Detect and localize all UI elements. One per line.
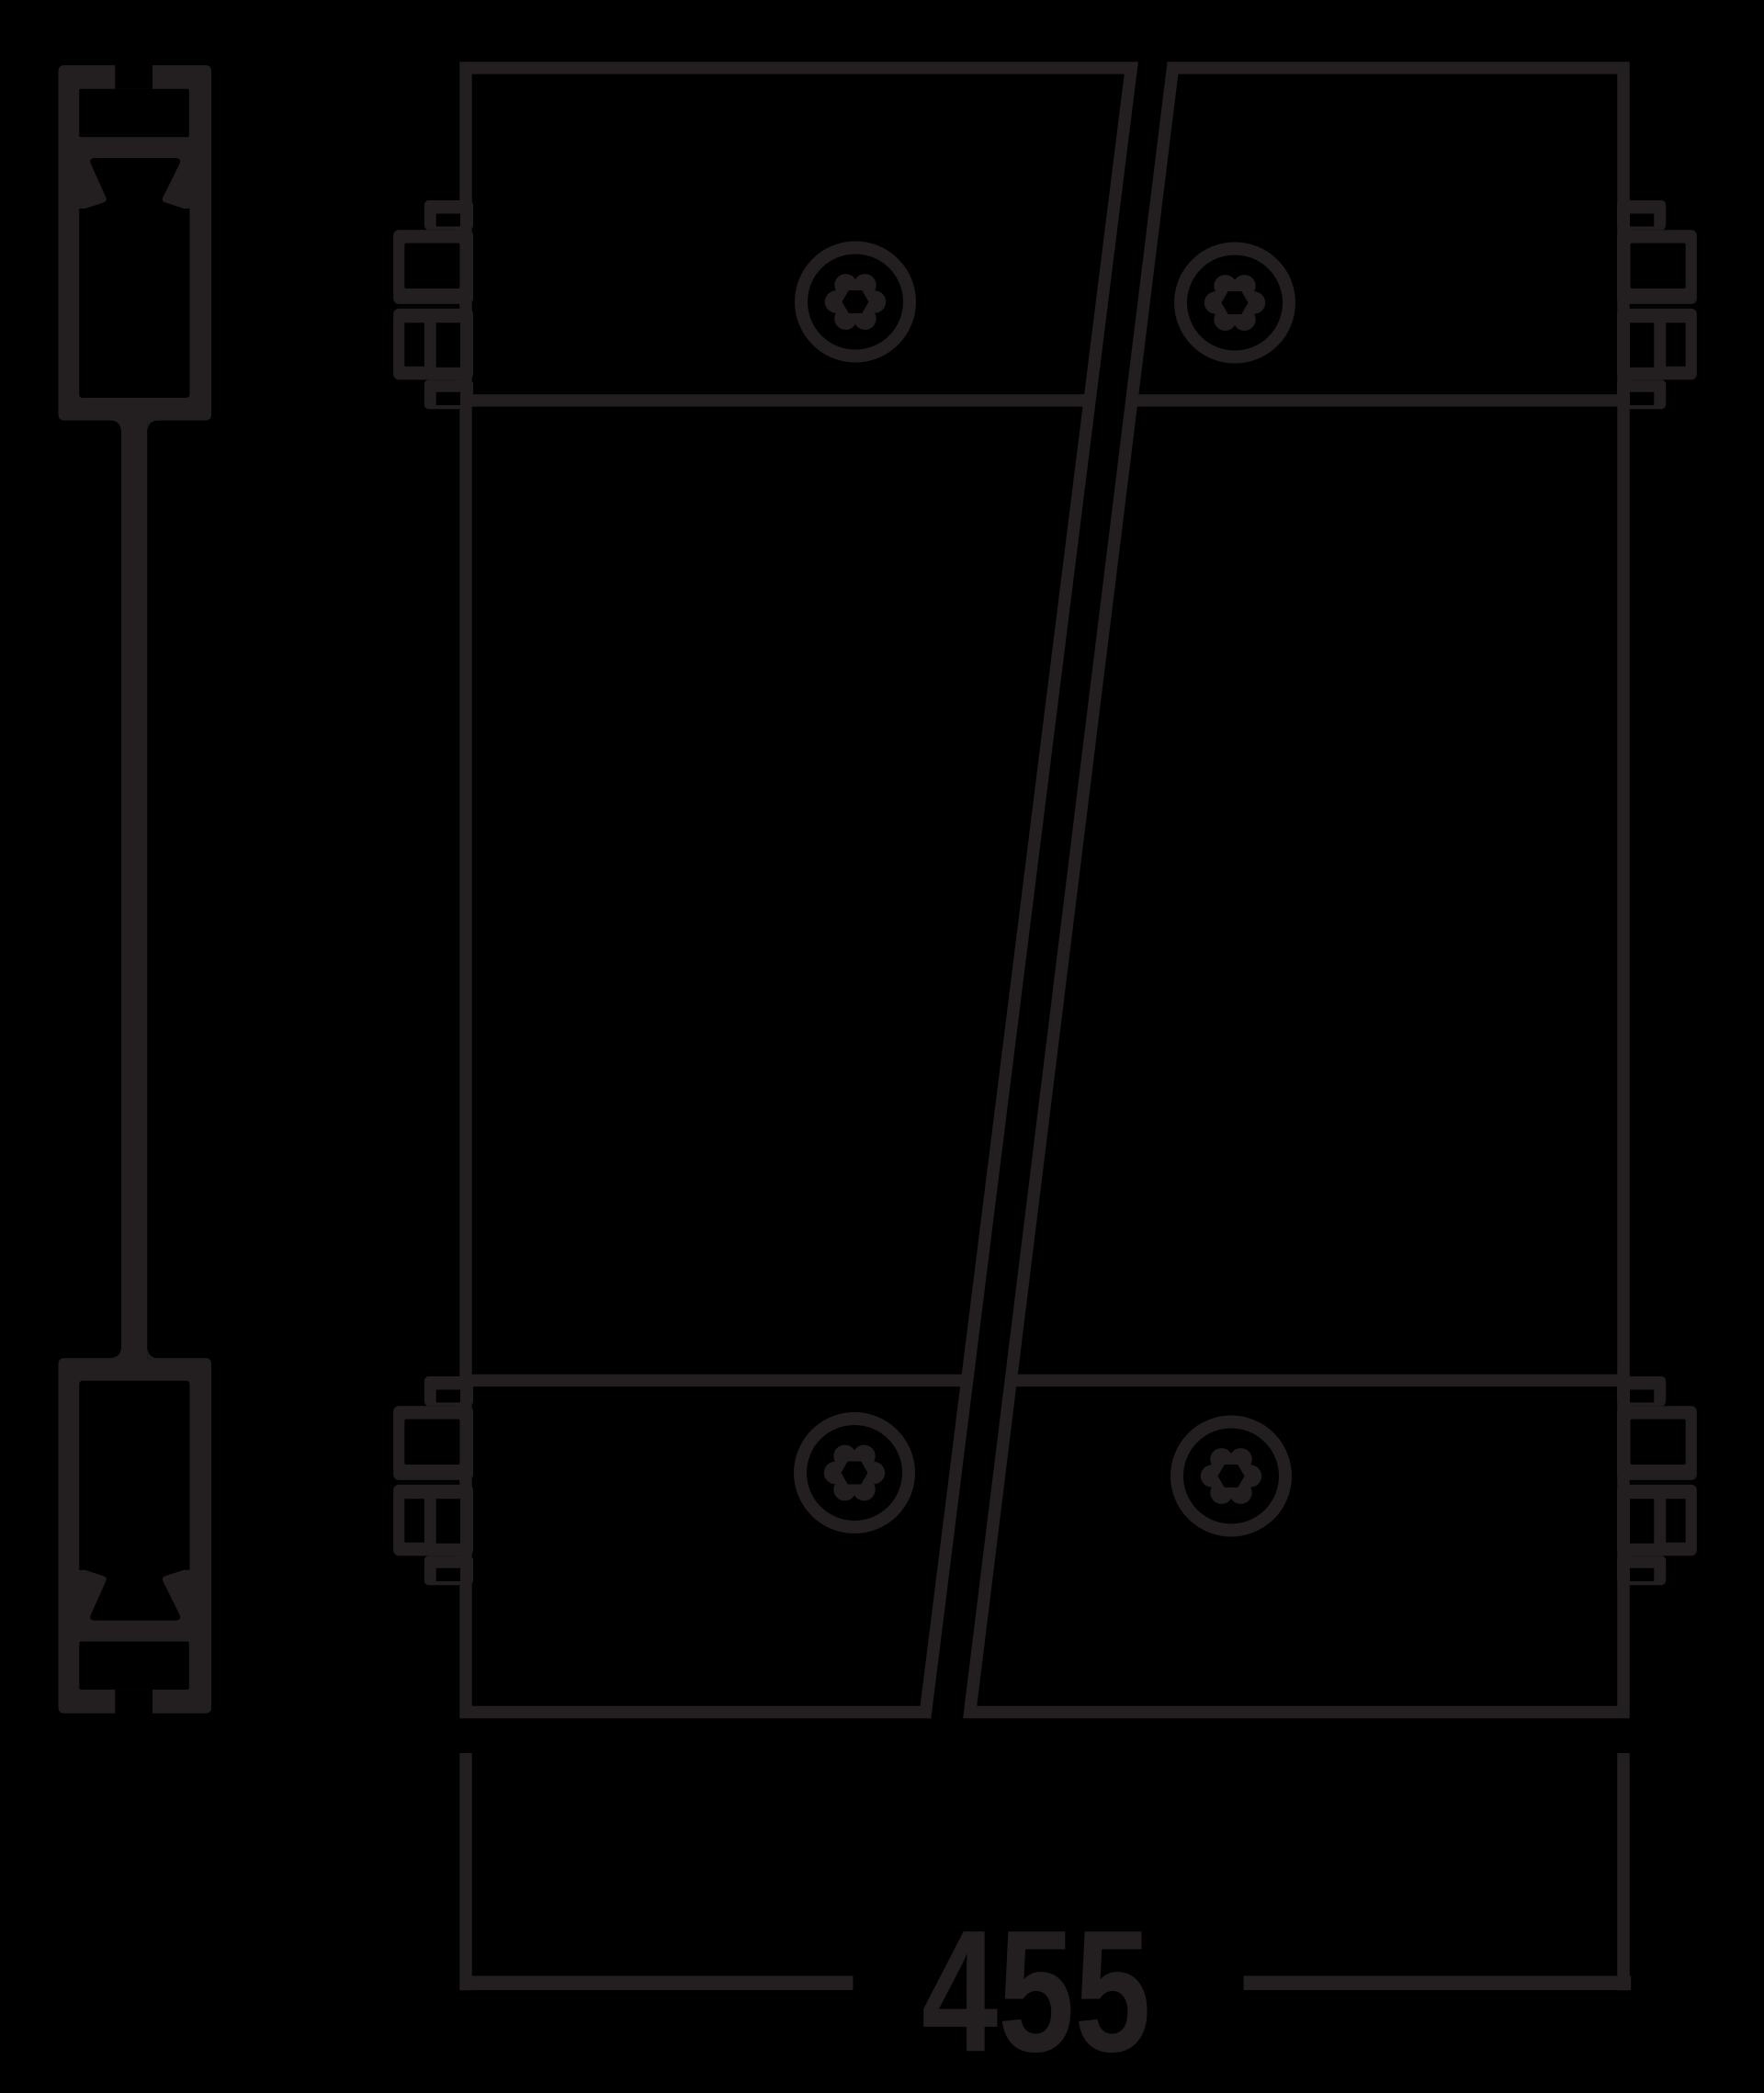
svg-text:455: 455 <box>922 1895 1151 2089</box>
